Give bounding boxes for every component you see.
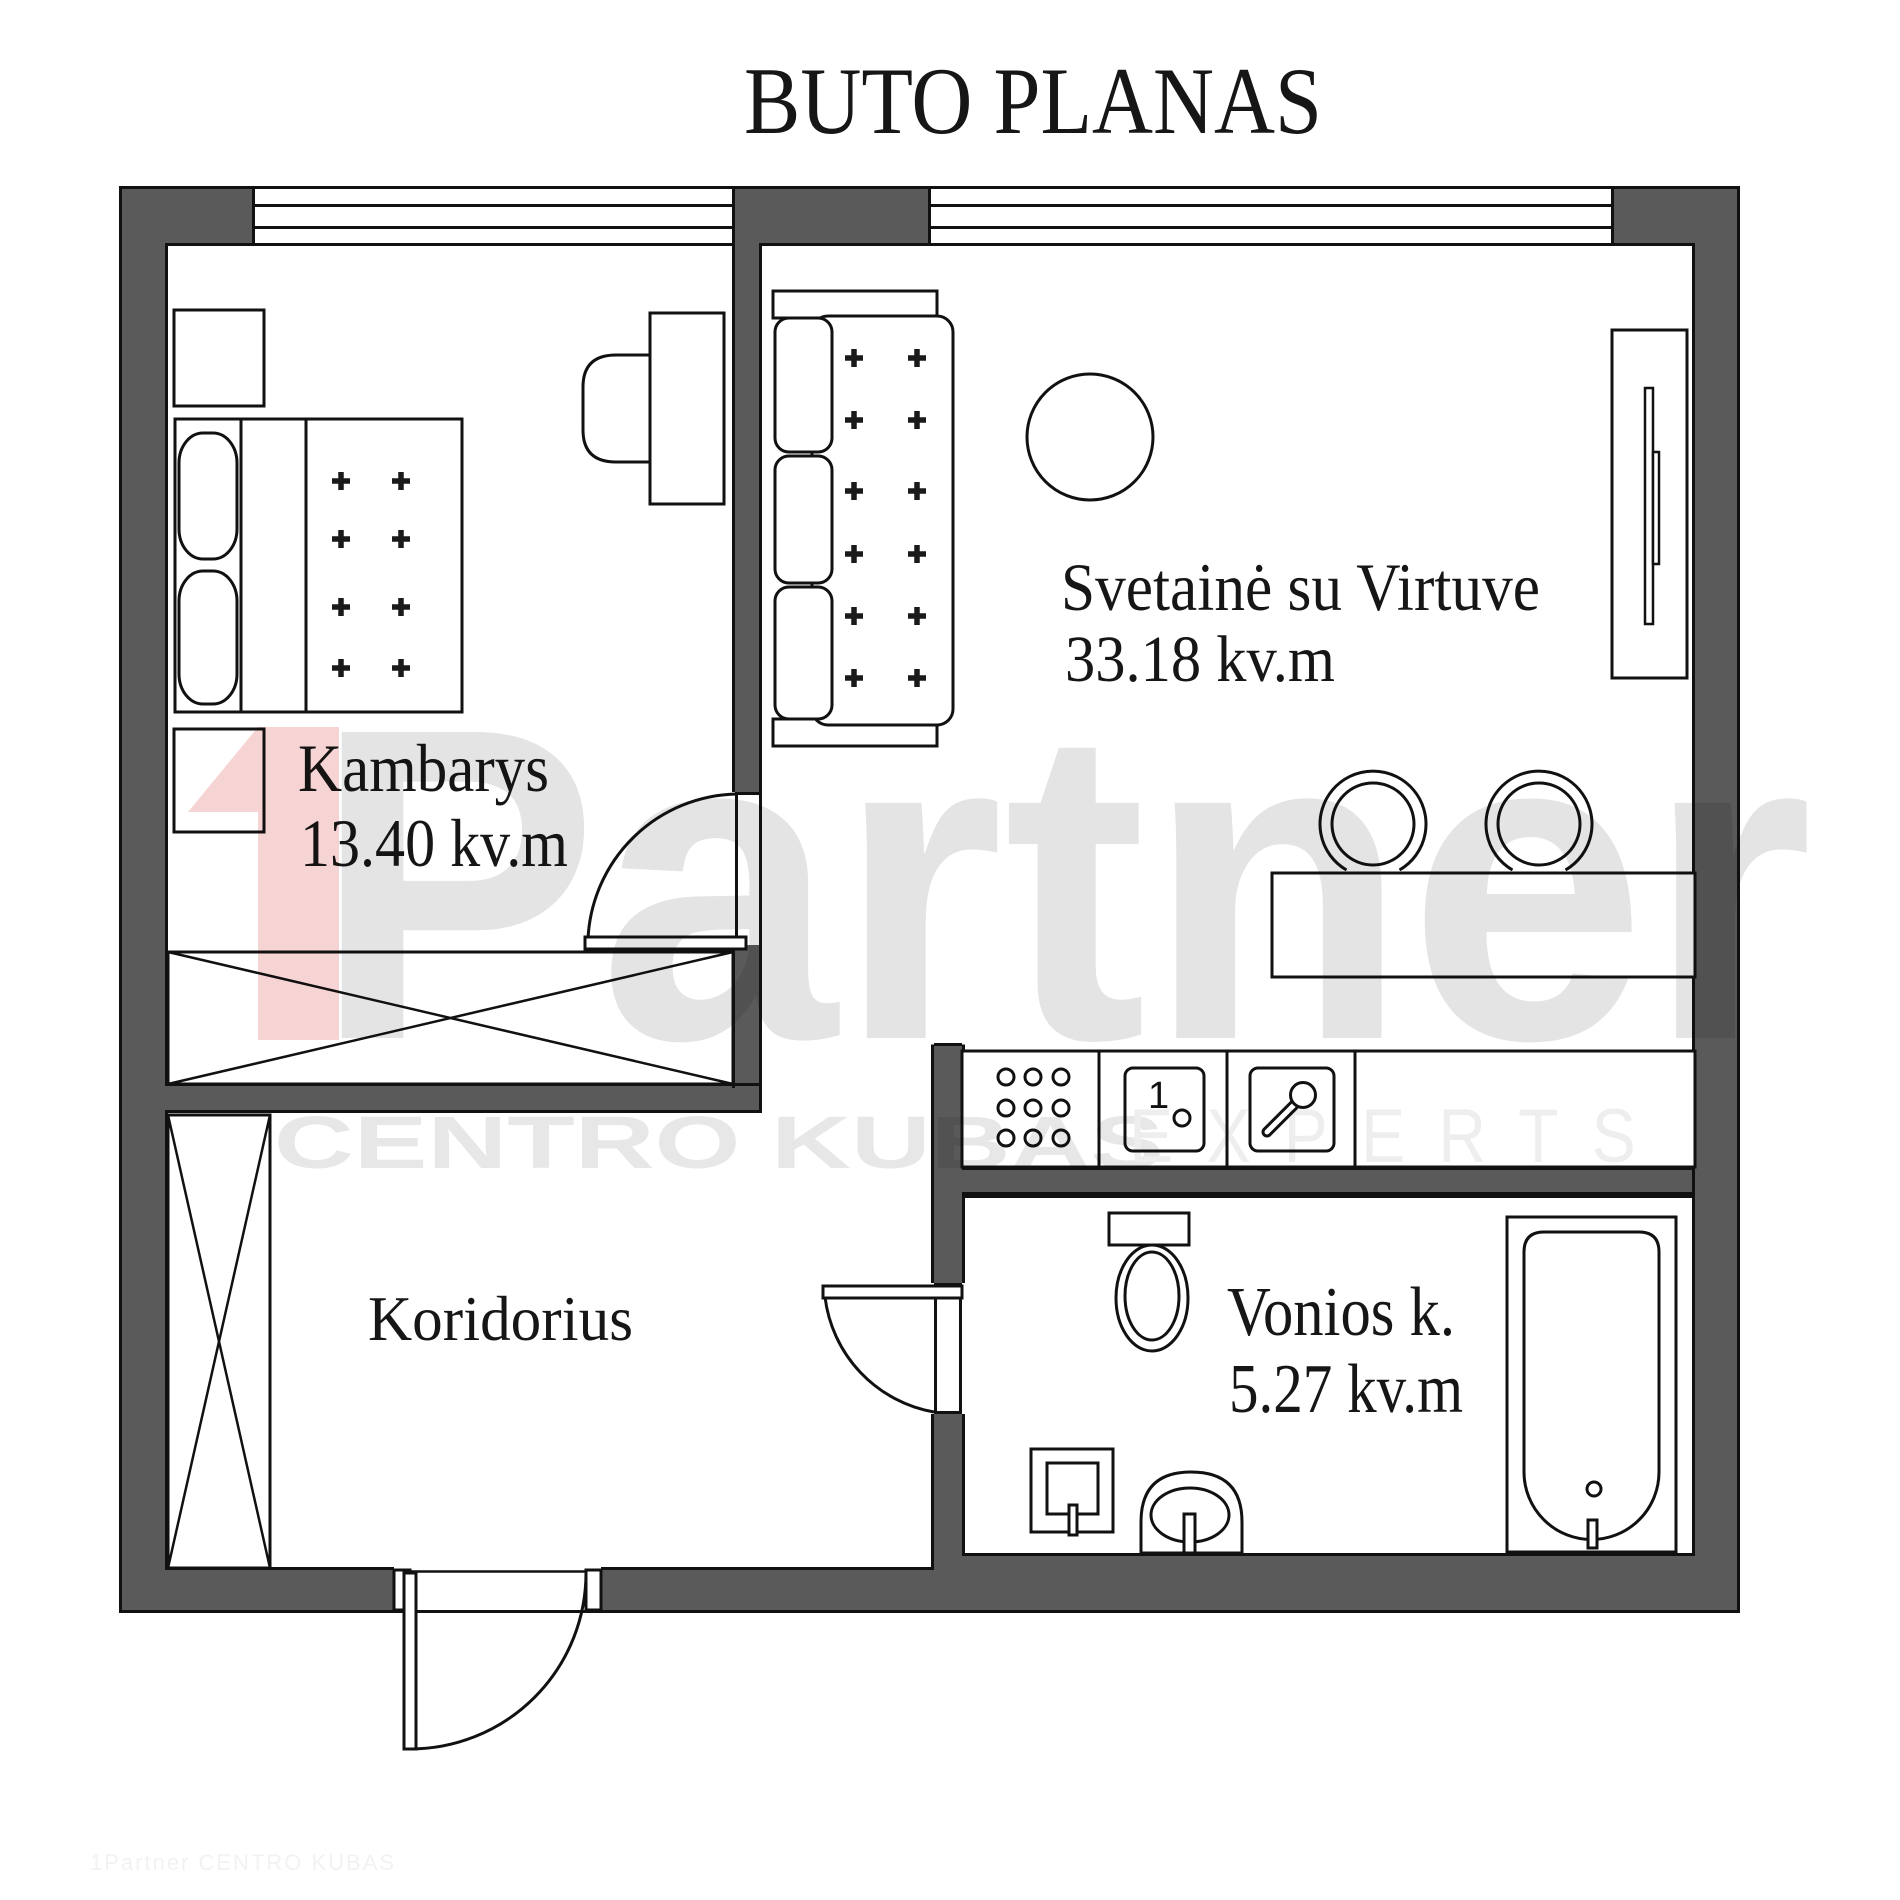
svg-text:EXPERTS: EXPERTS	[1129, 1094, 1669, 1179]
svg-text:Svetainė su Virtuve: Svetainė su Virtuve	[1061, 549, 1540, 625]
svg-text:CENTRO KUBAS: CENTRO KUBAS	[274, 1101, 1164, 1184]
svg-text:Vonios k.: Vonios k.	[1227, 1274, 1455, 1351]
svg-text:1Partner CENTRO KUBAS: 1Partner CENTRO KUBAS	[90, 1850, 396, 1875]
svg-text:Koridorius: Koridorius	[368, 1283, 633, 1354]
svg-text:BUTO PLANAS: BUTO PLANAS	[744, 48, 1322, 154]
svg-text:5.27 kv.m: 5.27 kv.m	[1229, 1351, 1463, 1428]
svg-text:Partner: Partner	[313, 636, 1813, 1133]
